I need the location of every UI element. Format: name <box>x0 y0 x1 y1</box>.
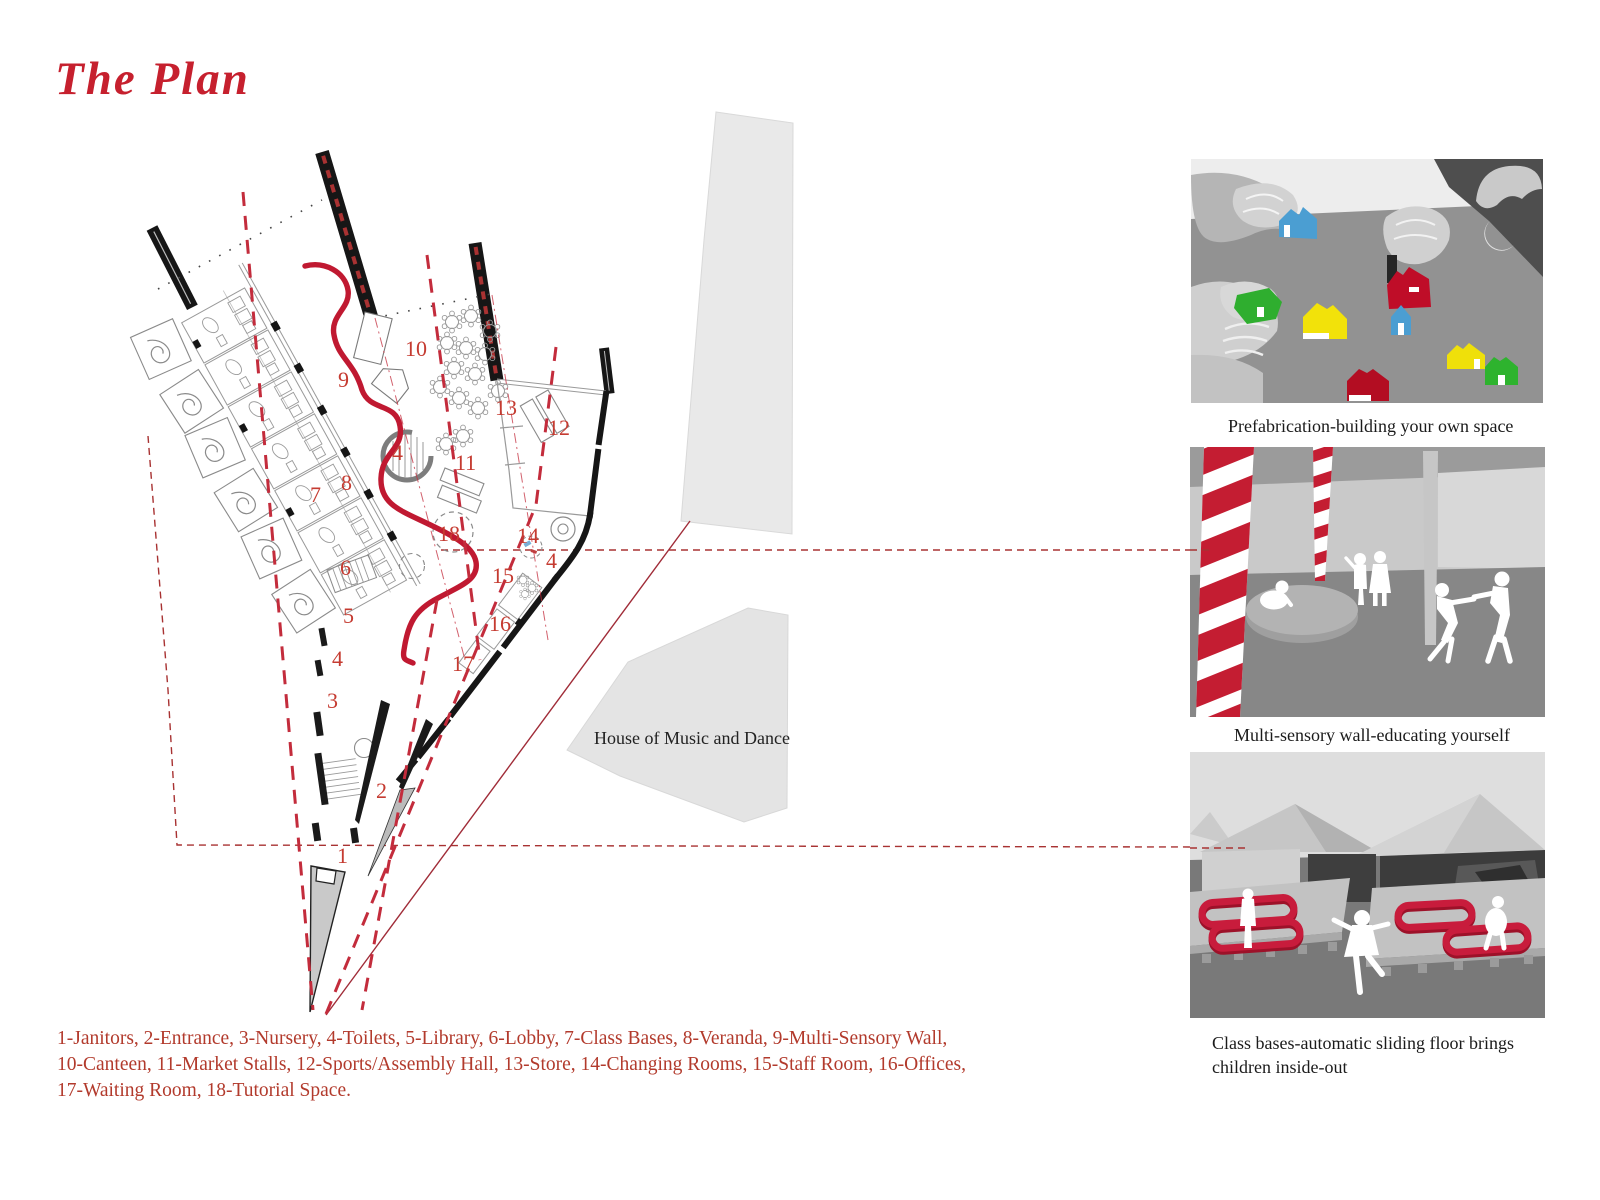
label-18: 18 <box>438 521 460 546</box>
legend-line-2: 10-Canteen, 11-Market Stalls, 12-Sports/… <box>57 1052 1017 1078</box>
label-2: 2 <box>376 778 387 803</box>
label-10: 10 <box>405 336 427 361</box>
legend-line-3: 17-Waiting Room, 18-Tutorial Space. <box>57 1078 1017 1104</box>
prefabrication-illustration <box>1191 159 1543 403</box>
label-17: 17 <box>452 651 474 676</box>
label-16: 16 <box>489 611 511 636</box>
label-3: 3 <box>327 688 338 713</box>
caption-multi-sensory: Multi-sensory wall-educating yourself <box>1234 723 1510 747</box>
label-6: 6 <box>340 555 351 580</box>
room-legend: 1-Janitors, 2-Entrance, 3-Nursery, 4-Toi… <box>57 1026 1017 1104</box>
entrance-ramp <box>310 866 345 1012</box>
label-15: 15 <box>492 563 514 588</box>
label-8: 8 <box>341 470 352 495</box>
label-12: 12 <box>548 415 570 440</box>
dotted-guides <box>158 200 491 318</box>
presentation-board: The Plan <box>0 0 1600 1200</box>
entrance-wall-east <box>399 719 433 790</box>
class-bases-illustration <box>1190 752 1545 1018</box>
site-polygon-north <box>681 112 793 534</box>
label-11: 11 <box>455 450 476 475</box>
section-axes <box>243 192 556 1014</box>
legend-line-1: 1-Janitors, 2-Entrance, 3-Nursery, 4-Toi… <box>57 1026 1017 1052</box>
label-1: 1 <box>337 843 348 868</box>
label-7: 7 <box>310 482 321 507</box>
label-4a: 4 <box>392 440 403 465</box>
label-4c: 4 <box>546 548 557 573</box>
ramp-notch <box>316 868 336 884</box>
site-polygons: House of Music and Dance <box>567 112 793 822</box>
label-4b: 4 <box>332 646 343 671</box>
canteen-tables <box>430 305 538 600</box>
label-14: 14 <box>517 523 539 548</box>
label-9: 9 <box>338 367 349 392</box>
figure-multi-sensory <box>1190 447 1545 722</box>
multi-sensory-illustration <box>1190 447 1545 717</box>
label-13: 13 <box>495 395 517 420</box>
caption-prefabrication: Prefabrication-building your own space <box>1228 414 1513 438</box>
house-of-music-polygon <box>567 608 788 822</box>
figure-class-bases <box>1190 752 1545 1023</box>
caption-class-bases: Class bases-automatic sliding floor brin… <box>1212 1031 1557 1079</box>
label-5: 5 <box>343 603 354 628</box>
house-of-music-label: House of Music and Dance <box>594 728 790 748</box>
entrance-wall-west <box>355 700 390 824</box>
veranda-squares <box>126 314 337 636</box>
figure-prefabrication <box>1191 159 1543 408</box>
